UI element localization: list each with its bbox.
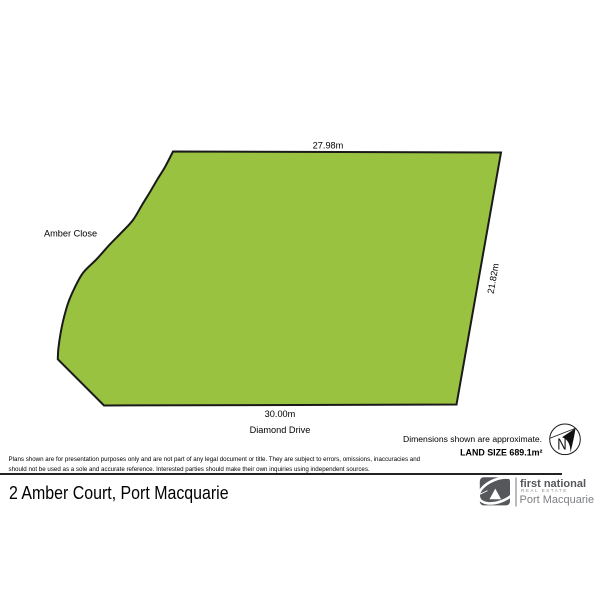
svg-text:Diamond Drive: Diamond Drive (250, 425, 311, 435)
svg-text:30.00m: 30.00m (265, 409, 296, 419)
svg-text:Amber Close: Amber Close (44, 229, 97, 239)
svg-text:LAND SIZE 689.1m²: LAND SIZE 689.1m² (460, 448, 542, 458)
svg-text:21.82m: 21.82m (486, 262, 501, 294)
svg-text:N: N (557, 437, 566, 454)
svg-text:Dimensions shown are approxima: Dimensions shown are approximate. (403, 434, 542, 444)
svg-text:27.98m: 27.98m (313, 141, 344, 151)
